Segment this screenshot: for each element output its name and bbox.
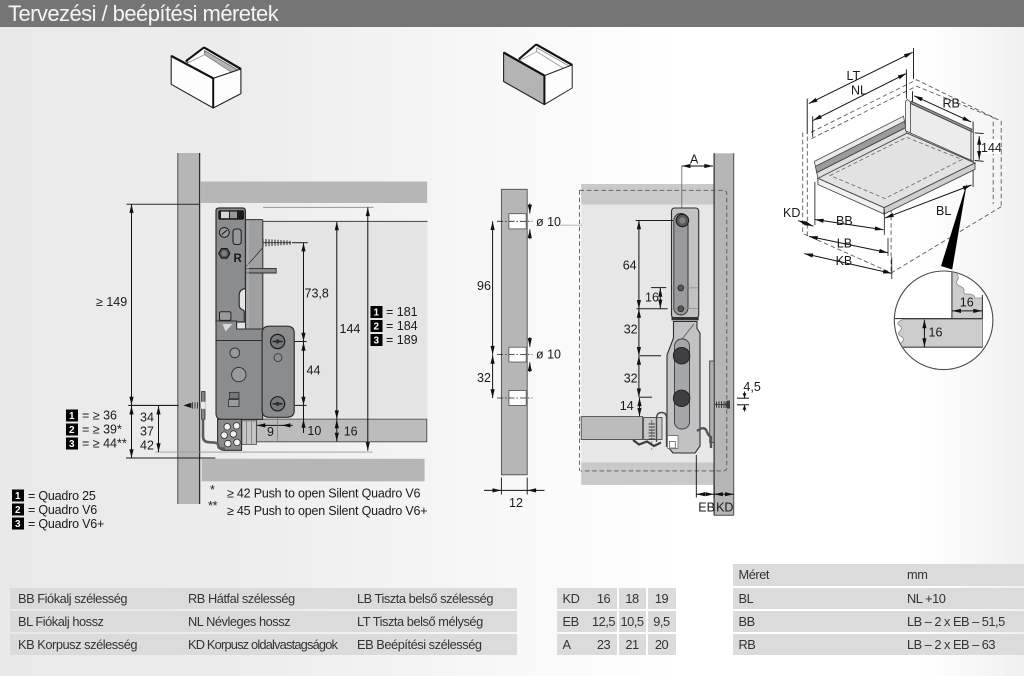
svg-text:**: ** — [208, 499, 218, 513]
svg-text:44: 44 — [307, 364, 321, 378]
svg-text:9: 9 — [267, 425, 274, 439]
svg-text:16: 16 — [344, 425, 358, 439]
svg-text:16: 16 — [960, 296, 974, 310]
svg-text:3: 3 — [15, 519, 21, 530]
svg-text:KD: KD — [783, 206, 800, 220]
svg-text:64: 64 — [623, 259, 637, 273]
svg-text:32: 32 — [477, 371, 491, 385]
svg-text:= Quadro V6: = Quadro V6 — [28, 503, 97, 517]
svg-text:KD: KD — [716, 501, 733, 515]
svg-text:BB: BB — [836, 214, 853, 228]
svg-text:= ≥ 36: = ≥ 36 — [82, 409, 117, 423]
svg-text:EB: EB — [698, 501, 715, 515]
svg-text:144: 144 — [340, 322, 361, 336]
svg-text:1: 1 — [15, 491, 21, 502]
svg-text:= 189: = 189 — [386, 333, 418, 347]
svg-text:3: 3 — [374, 336, 380, 347]
svg-text:4,5: 4,5 — [743, 380, 760, 394]
svg-text:42: 42 — [140, 439, 154, 453]
svg-text:R: R — [234, 253, 243, 265]
svg-text:RB: RB — [943, 97, 960, 111]
svg-text:2: 2 — [69, 425, 75, 436]
svg-text:37: 37 — [140, 425, 154, 439]
svg-text:96: 96 — [477, 279, 491, 293]
svg-text:16: 16 — [645, 291, 659, 305]
svg-text:≥ 42 Push to open Silent Quadr: ≥ 42 Push to open Silent Quadro V6 — [227, 487, 420, 501]
svg-text:12: 12 — [509, 496, 523, 510]
svg-text:KB: KB — [836, 254, 853, 268]
svg-text:= 181: = 181 — [386, 305, 418, 319]
svg-text:≥ 149: ≥ 149 — [96, 295, 127, 309]
svg-text:= 184: = 184 — [386, 319, 418, 333]
svg-text:32: 32 — [624, 323, 638, 337]
svg-text:144: 144 — [981, 141, 1002, 155]
svg-text:*: * — [210, 483, 215, 497]
svg-text:1: 1 — [69, 411, 75, 422]
svg-text:LT: LT — [847, 69, 861, 83]
svg-text:1: 1 — [374, 308, 380, 319]
svg-text:10: 10 — [307, 424, 321, 438]
svg-text:ø 10: ø 10 — [536, 348, 561, 362]
svg-text:= ≥ 44**: = ≥ 44** — [82, 437, 127, 451]
svg-text:= ≥ 39*: = ≥ 39* — [82, 423, 122, 437]
svg-text:LB: LB — [837, 236, 852, 250]
svg-text:73,8: 73,8 — [305, 287, 329, 301]
svg-text:34: 34 — [140, 411, 154, 425]
svg-text:3: 3 — [69, 439, 75, 450]
svg-text:16: 16 — [929, 326, 943, 340]
svg-text:2: 2 — [374, 322, 380, 333]
svg-text:ø 10: ø 10 — [536, 215, 561, 229]
svg-text:= Quadro 25: = Quadro 25 — [28, 489, 96, 503]
svg-text:BL: BL — [936, 204, 951, 218]
svg-text:A: A — [690, 153, 699, 167]
svg-text:= Quadro V6+: = Quadro V6+ — [28, 517, 104, 531]
svg-text:2: 2 — [15, 505, 21, 516]
svg-text:≥ 45 Push to open Silent Quadr: ≥ 45 Push to open Silent Quadro V6+ — [227, 504, 427, 518]
svg-text:14: 14 — [620, 399, 634, 413]
svg-text:NL: NL — [851, 84, 867, 98]
svg-text:32: 32 — [624, 372, 638, 386]
